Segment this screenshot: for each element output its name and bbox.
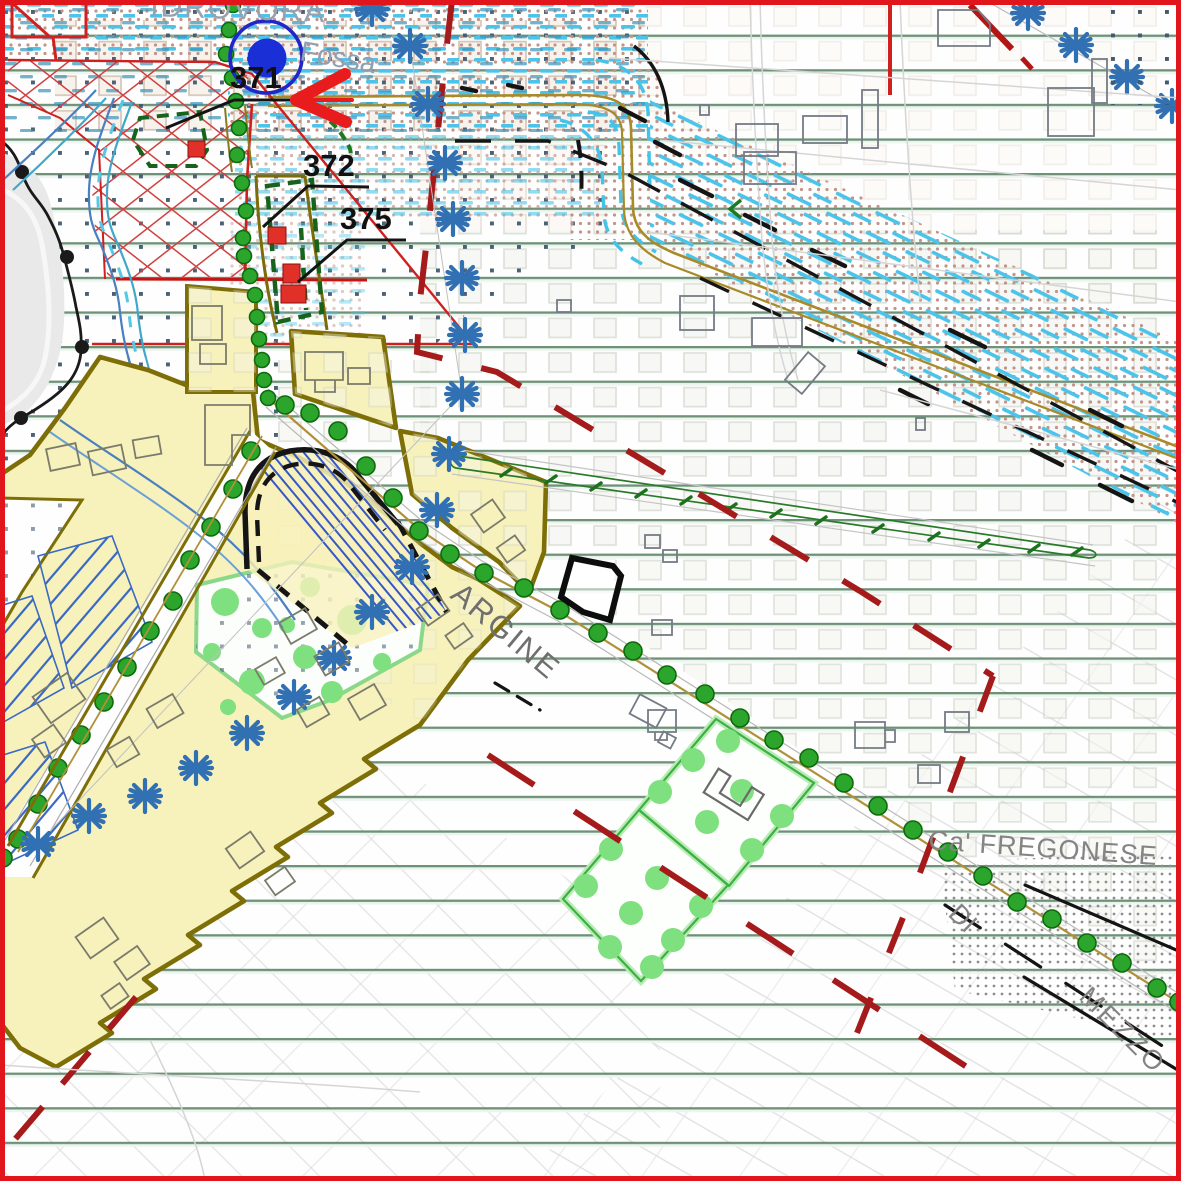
svg-text:375: 375 (340, 201, 392, 236)
svg-text:371: 371 (230, 60, 282, 95)
svg-text:372: 372 (303, 148, 355, 183)
